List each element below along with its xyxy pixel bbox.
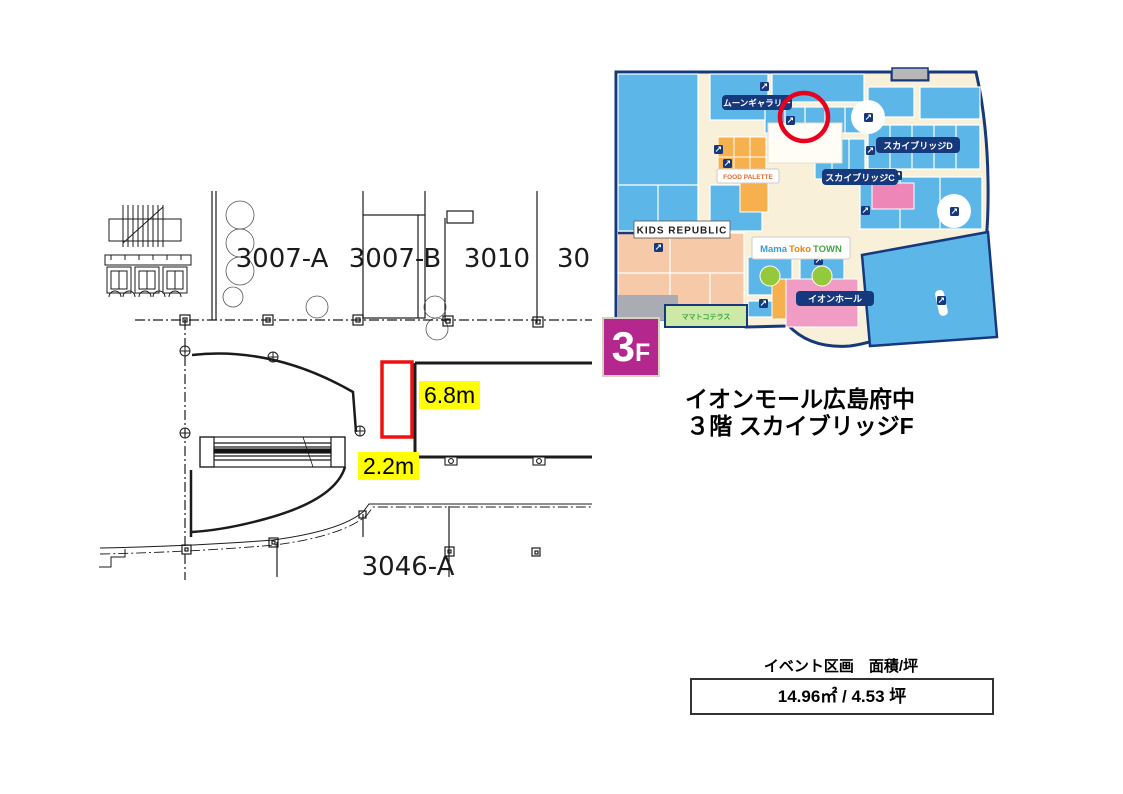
location-title-line2: ３階 スカイブリッジF	[608, 413, 992, 440]
balcony-edge	[192, 354, 356, 432]
svg-text:イオンホール: イオンホール	[808, 294, 862, 304]
room-label-3046a: 3046-A	[362, 552, 455, 582]
svg-text:スカイブリッジC: スカイブリッジC	[825, 172, 895, 183]
terrace-logo: ママトコテラス	[682, 313, 731, 321]
elevator-bank	[105, 255, 191, 297]
map-gray-block	[892, 68, 928, 80]
pink-store-block	[872, 183, 914, 209]
room-label-3007b: 3007-B	[349, 244, 441, 274]
area-table-value: 14.96㎡ / 4.53 坪	[690, 678, 994, 715]
location-title: イオンモール広島府中 ３階 スカイブリッジF	[608, 386, 992, 440]
mall-wall	[415, 363, 592, 457]
room-label-3010: 3010	[464, 244, 530, 274]
room-label-30: 30	[557, 244, 590, 274]
stairs	[109, 205, 181, 247]
page: 3007-A 3007-B 3010 30 3046-A 6.8m 2.2m	[0, 0, 1123, 794]
svg-text:スカイブリッジD: スカイブリッジD	[883, 140, 953, 151]
tree-circle	[812, 266, 832, 286]
floor-badge-3f: 3 F	[602, 317, 660, 377]
room-label-3007a: 3007-A	[236, 244, 329, 274]
floor-number: 3	[612, 326, 635, 368]
column-markers	[180, 315, 543, 327]
escalator	[200, 437, 345, 467]
floorplan-drawing: 3007-A 3007-B 3010 30 3046-A	[95, 185, 595, 605]
wall	[212, 191, 216, 320]
svg-text:KIDS REPUBLIC: KIDS REPUBLIC	[637, 226, 728, 237]
location-title-line1: イオンモール広島府中	[608, 386, 992, 413]
mamatoko-logo: MamaTokoTOWN	[760, 244, 842, 255]
svg-text:FOOD PALETTE: FOOD PALETTE	[723, 174, 773, 181]
area-table-header: イベント区画 面積/坪	[690, 655, 992, 676]
tree-circle	[760, 266, 780, 286]
dimension-label-width: 2.2m	[358, 452, 419, 480]
column-markers-bottom	[182, 511, 540, 556]
dimension-label-height: 6.8m	[419, 381, 480, 409]
floor-suffix: F	[635, 341, 650, 366]
event-area-marker	[382, 362, 412, 437]
mall-map: ママトコテラス ムーンギャラリー スカイブリッジD スカイ	[610, 65, 1000, 355]
